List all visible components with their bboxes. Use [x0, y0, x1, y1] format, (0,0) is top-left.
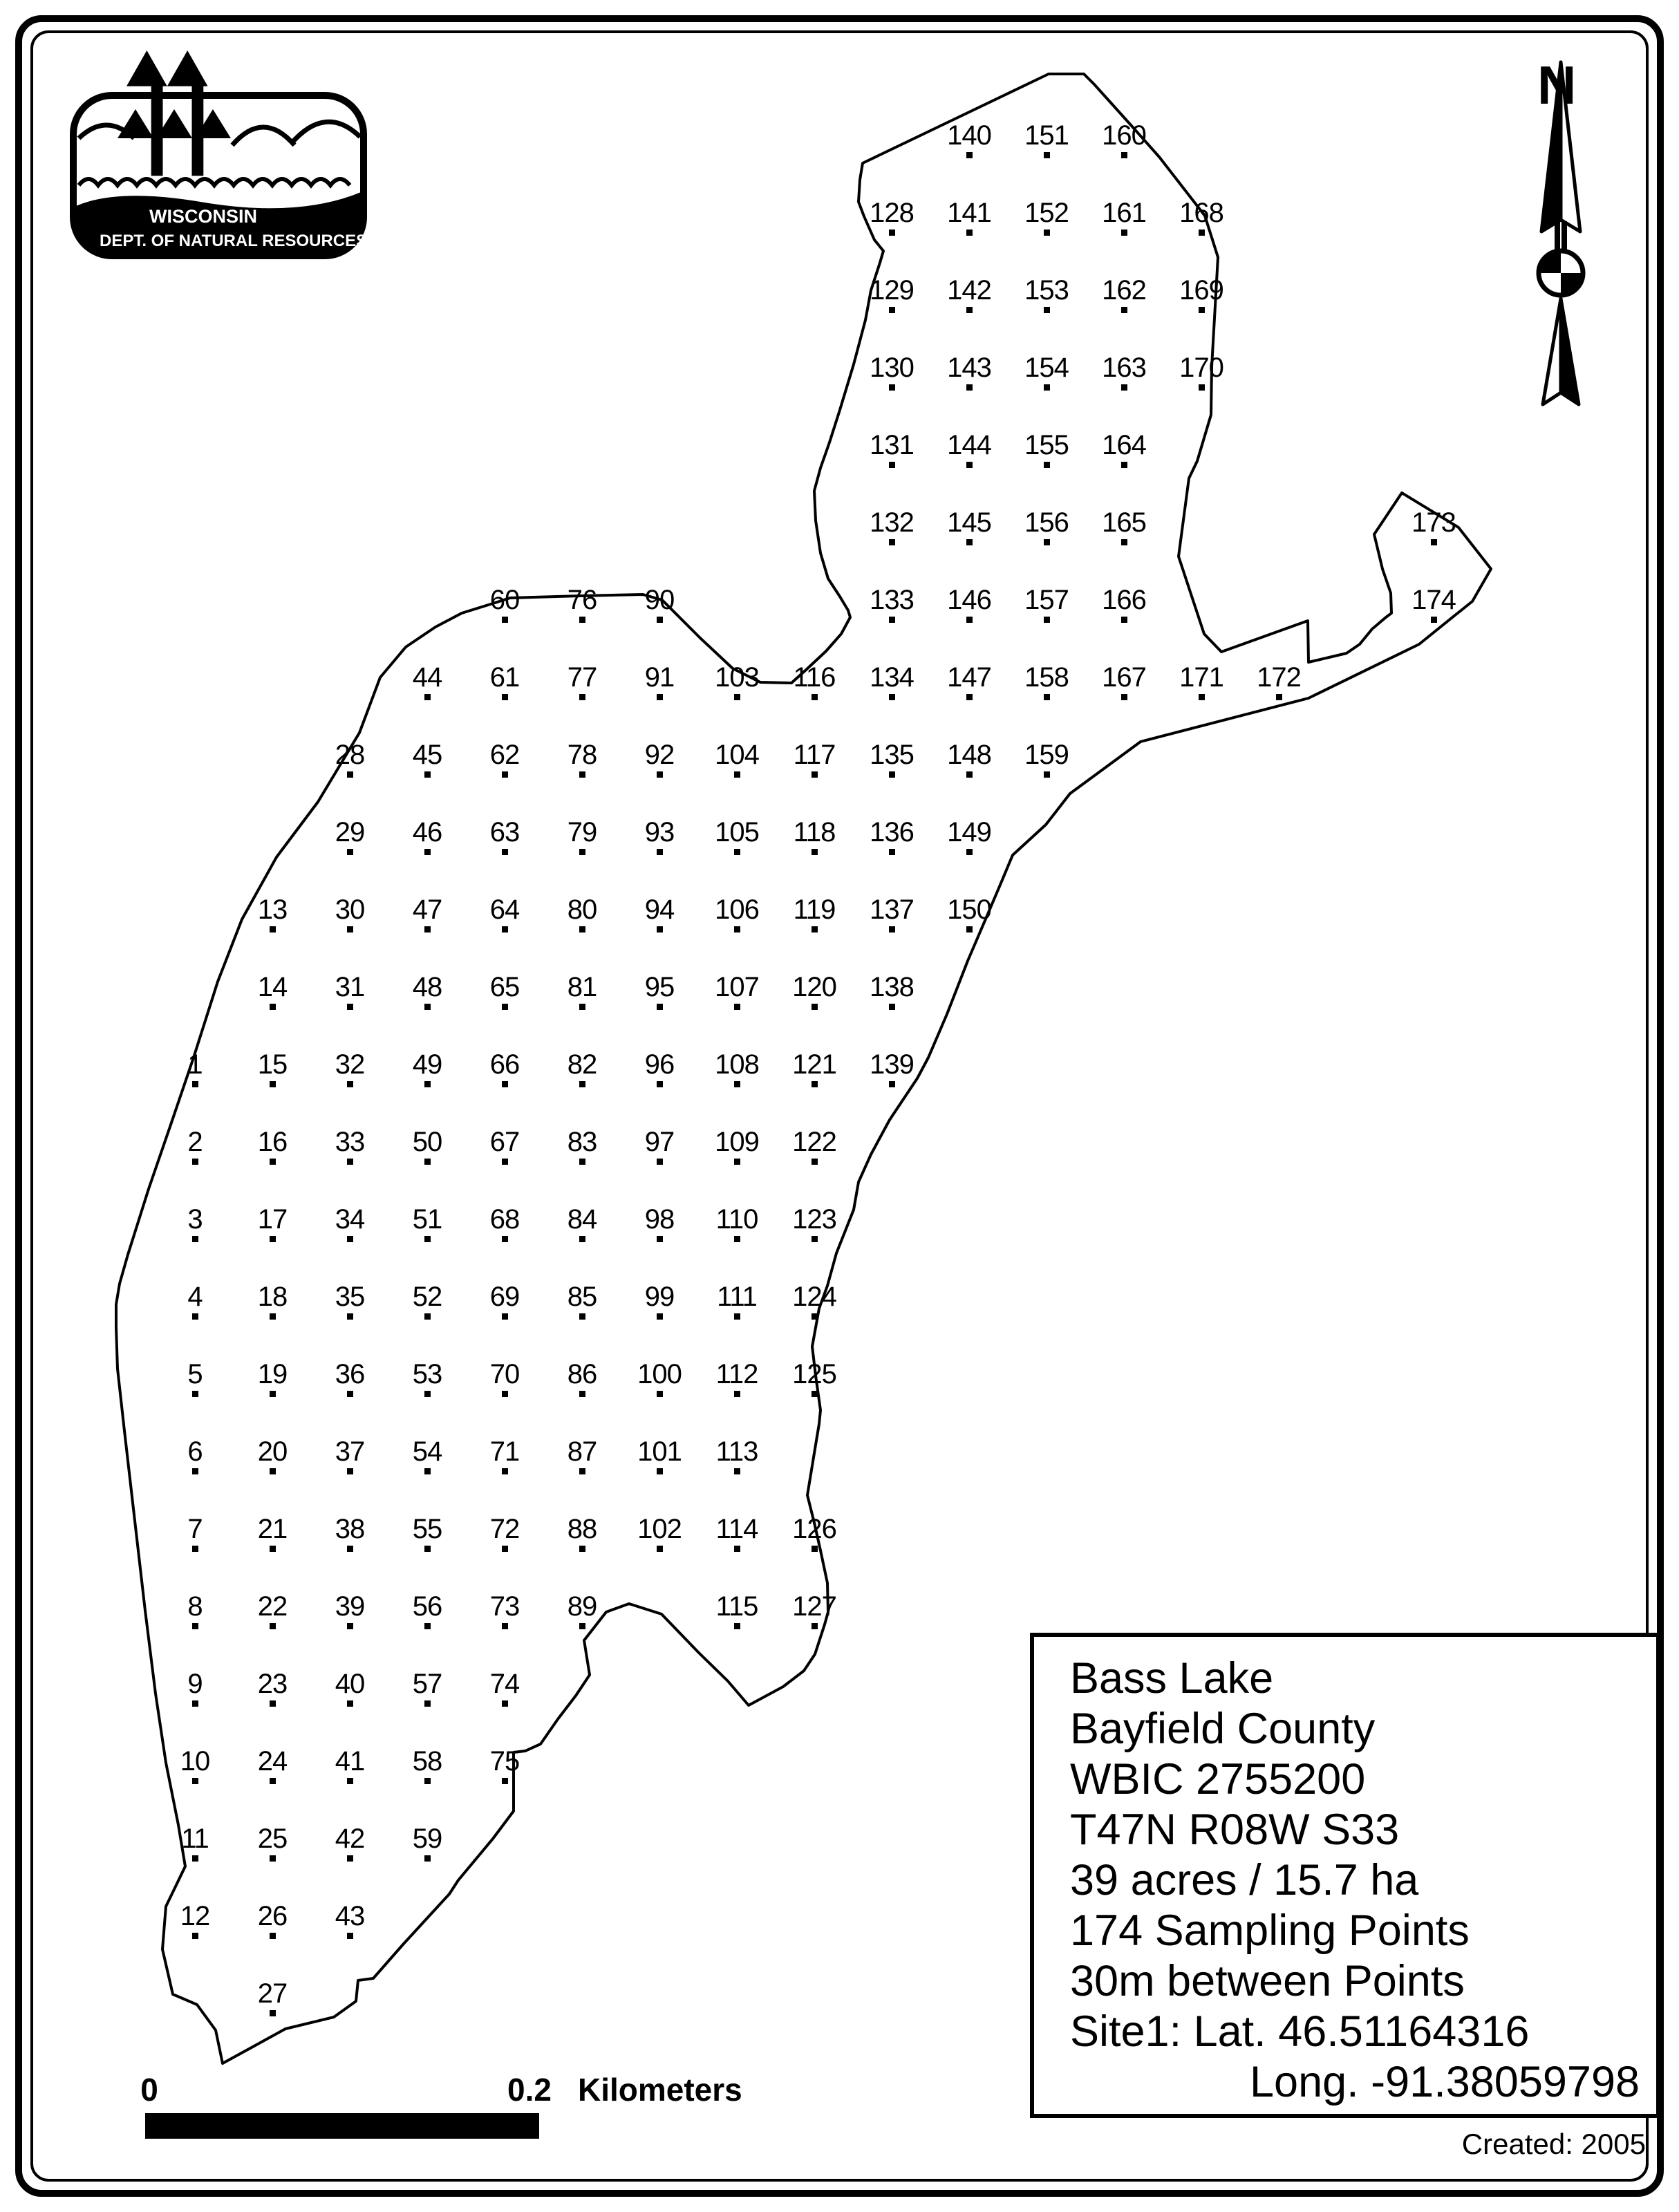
info-county: Bayfield County [1070, 1704, 1642, 1754]
created-date-label: Created: 2005 [1462, 2128, 1646, 2161]
scalebar-start-label: 0 [129, 2071, 170, 2108]
logo-org-line1: WISCONSIN [149, 206, 257, 227]
north-arrow-icon [1507, 55, 1617, 418]
scalebar-unit-label: Kilometers [578, 2071, 742, 2108]
info-township: T47N R08W S33 [1070, 1805, 1642, 1855]
wisconsin-dnr-logo: WISCONSIN DEPT. OF NATURAL RESOURCES [66, 41, 370, 266]
logo-org-line2: DEPT. OF NATURAL RESOURCES [100, 232, 367, 250]
info-site-long: Long. -91.38059798 [1070, 2057, 1642, 2108]
info-wbic: WBIC 2755200 [1070, 1754, 1642, 1805]
info-area: 39 acres / 15.7 ha [1070, 1855, 1642, 1906]
info-lake-name: Bass Lake [1070, 1653, 1642, 1704]
info-spacing: 30m between Points [1070, 1956, 1642, 2007]
map-page: 1234567891011121314151617181920212223242… [0, 0, 1679, 2212]
info-site-lat: Site1: Lat. 46.51164316 [1070, 2007, 1642, 2057]
lake-info-box: Bass Lake Bayfield County WBIC 2755200 T… [1030, 1633, 1660, 2118]
scalebar-end-label: 0.2 [495, 2071, 564, 2108]
info-point-count: 174 Sampling Points [1070, 1906, 1642, 1956]
scalebar-bar [145, 2113, 539, 2139]
